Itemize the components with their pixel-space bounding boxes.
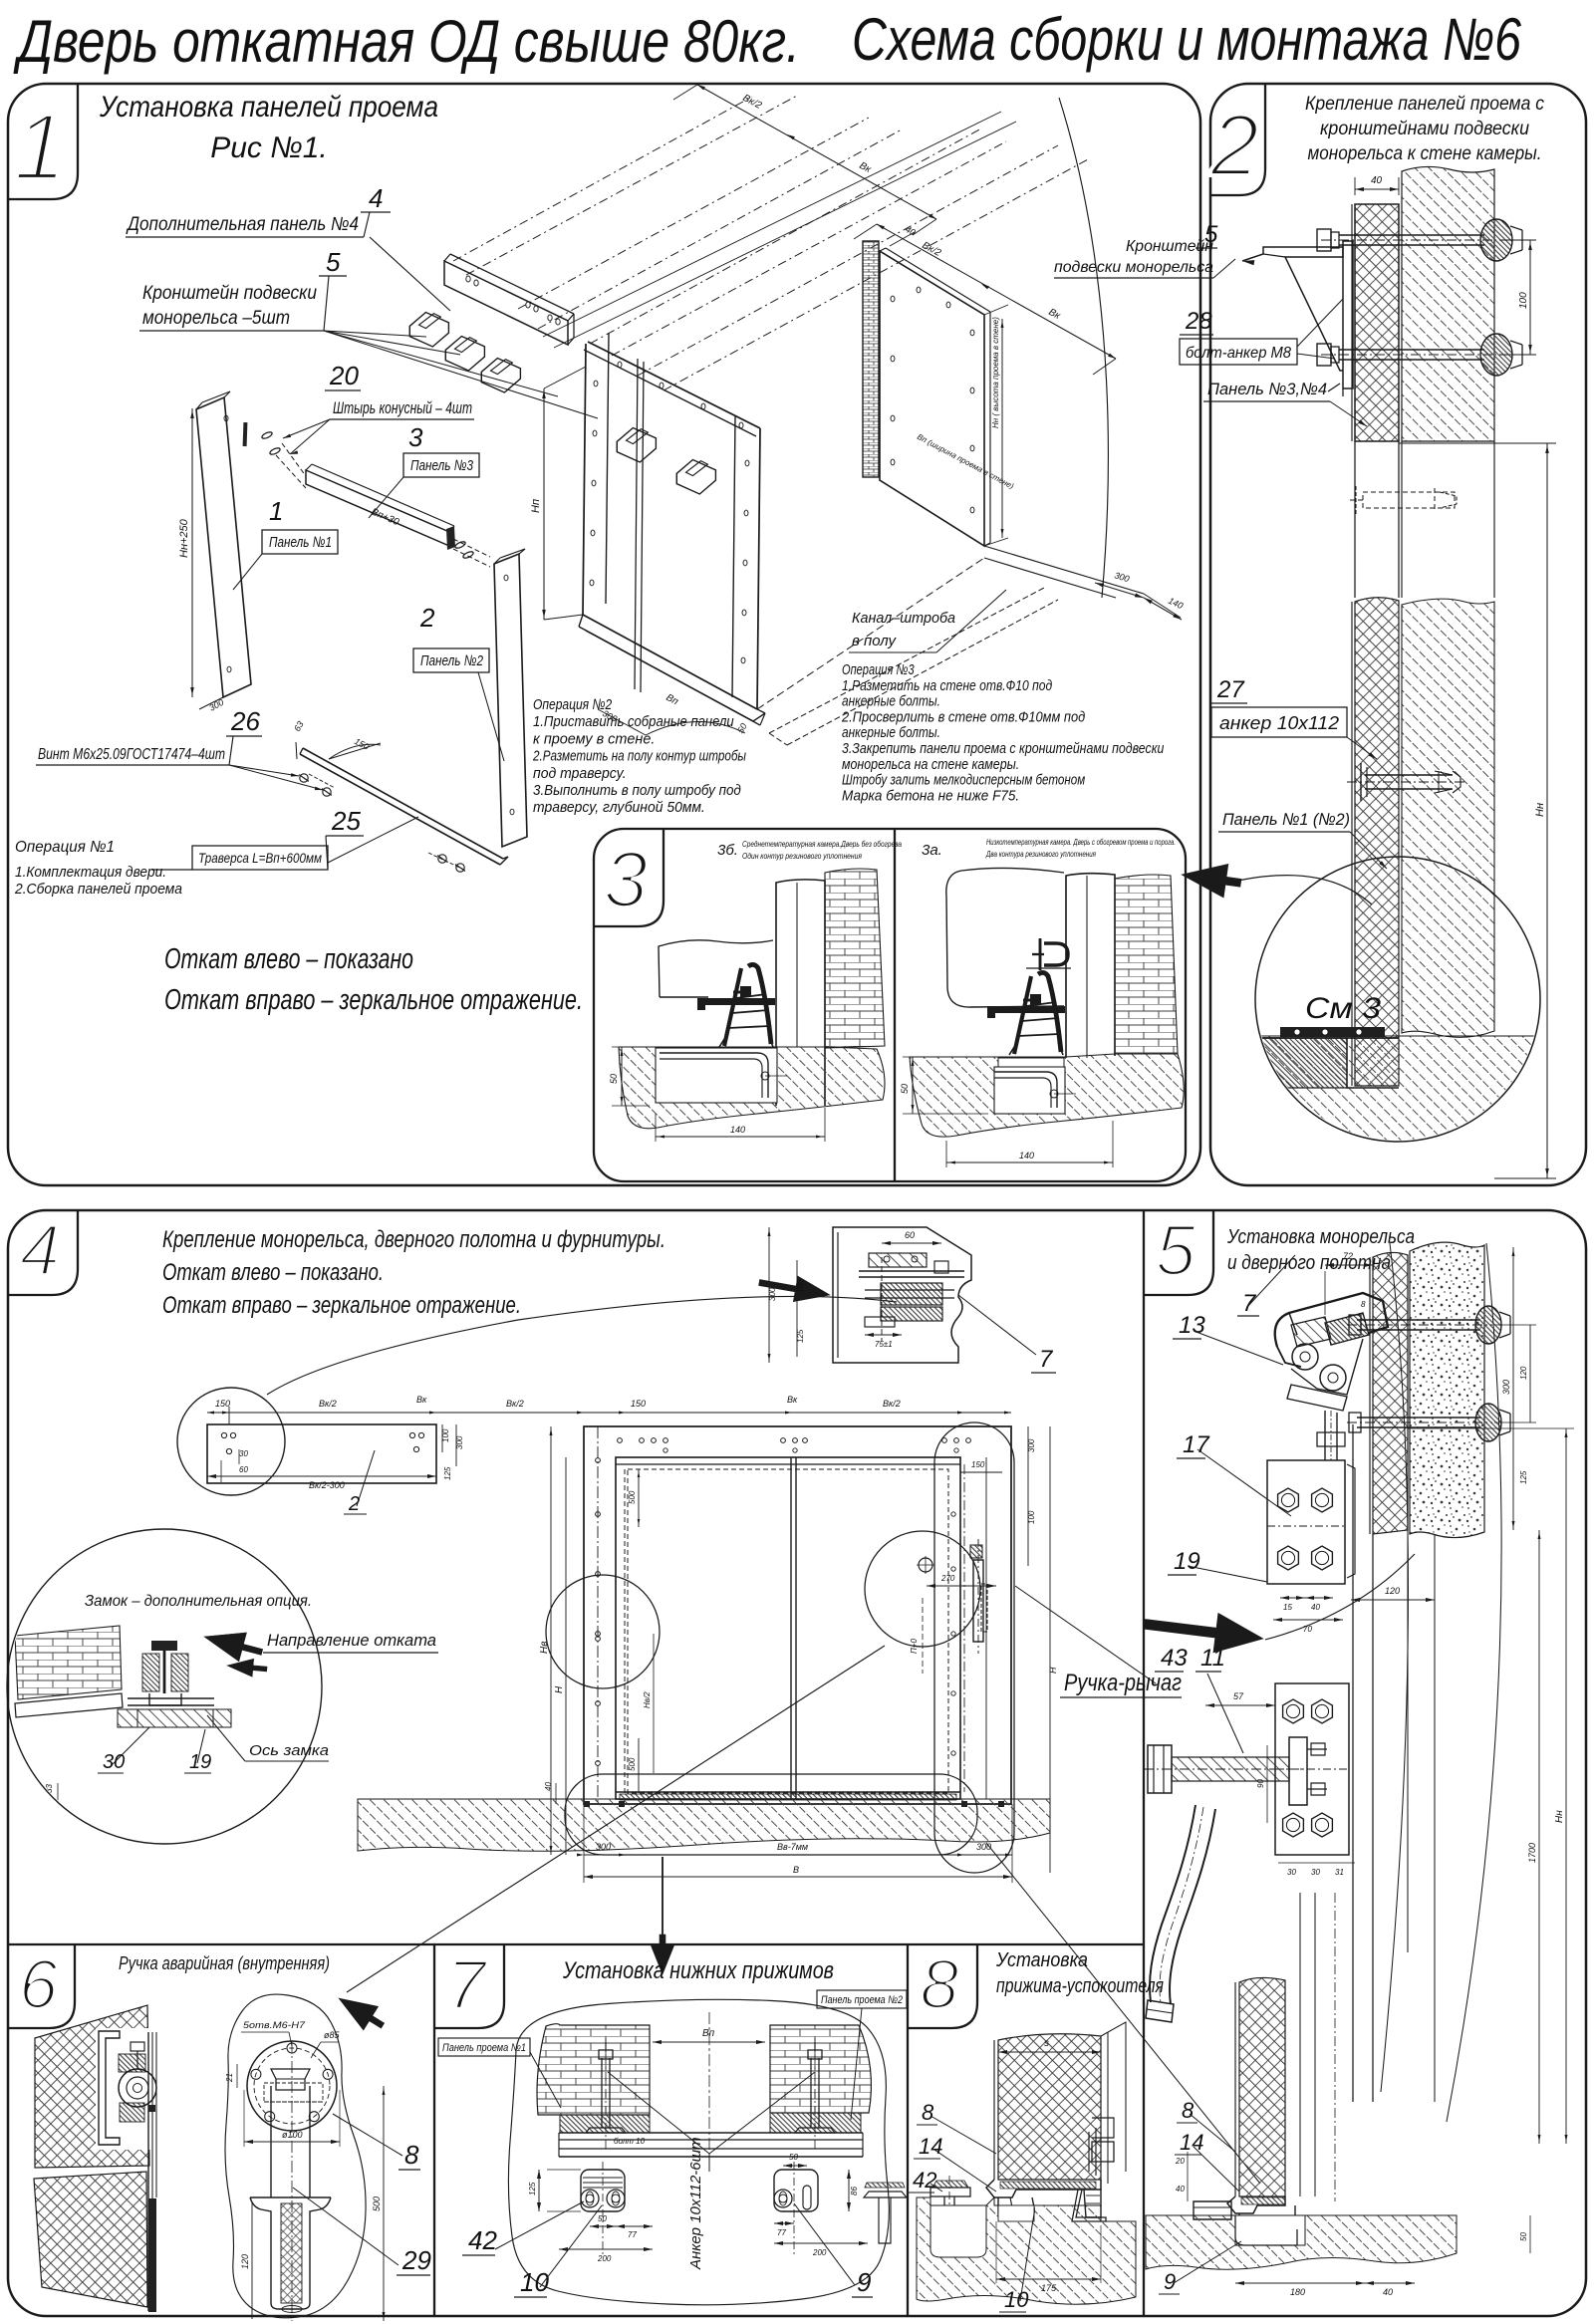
svg-text:2: 2 [1209,96,1259,194]
svg-text:40: 40 [1383,2287,1393,2297]
svg-text:s: s [1044,2038,1049,2049]
svg-text:3.Закрепить панели проема с кр: 3.Закрепить панели проема с кронштейнами… [842,741,1164,757]
svg-text:31: 31 [1335,1868,1344,1877]
svg-text:25: 25 [331,806,361,836]
svg-text:болт-анкер М8: болт-анкер М8 [1186,345,1291,362]
svg-text:50: 50 [609,1074,619,1084]
svg-text:300: 300 [596,1842,611,1852]
svg-text:Установка монорельса: Установка монорельса [1226,1226,1415,1248]
svg-text:Анкер 10х112-6шт: Анкер 10х112-6шт [687,2137,704,2270]
svg-text:Нн: Нн [1534,803,1546,817]
svg-text:4: 4 [369,183,383,213]
svg-text:140: 140 [1019,1151,1034,1161]
svg-text:60: 60 [239,1465,248,1474]
svg-text:20: 20 [1175,2157,1185,2166]
svg-text:Среднетемпературная камера.Две: Среднетемпературная камера.Дверь без обо… [742,839,902,849]
svg-text:1700: 1700 [1527,1843,1537,1863]
svg-text:20: 20 [329,361,359,390]
svg-text:14: 14 [1180,2130,1203,2155]
svg-text:Нв/2: Нв/2 [643,1691,652,1708]
svg-text:72: 72 [1343,1251,1353,1261]
svg-text:Нн+250: Нн+250 [178,518,190,558]
svg-text:500: 500 [628,1490,637,1504]
svg-text:40: 40 [1311,1603,1320,1612]
svg-text:42: 42 [468,2225,497,2255]
svg-text:3.Выполнить в полу штробу под: 3.Выполнить в полу штробу под [533,782,741,799]
svg-text:200: 200 [597,2254,612,2263]
svg-text:125: 125 [528,2182,537,2195]
svg-text:Нв: Нв [539,1642,550,1654]
svg-text:50: 50 [1519,2232,1528,2241]
svg-text:17: 17 [1183,1431,1210,1458]
svg-text:5: 5 [1156,1211,1196,1291]
svg-text:2: 2 [419,603,435,633]
svg-text:Дверь откатная ОД свыше 80кг.: Дверь откатная ОД свыше 80кг. [13,8,800,75]
svg-text:15: 15 [1283,1603,1292,1612]
svg-text:13: 13 [1179,1312,1205,1339]
svg-text:и дверного полотна: и дверного полотна [1227,1252,1391,1274]
svg-text:500: 500 [628,1757,637,1771]
svg-text:1: 1 [14,95,67,200]
svg-text:200: 200 [812,2248,827,2257]
svg-text:75±1: 75±1 [875,1340,893,1349]
svg-text:100: 100 [796,1279,805,1293]
svg-text:3а.: 3а. [922,842,942,859]
svg-text:120: 120 [240,2254,250,2269]
svg-text:траверсу, глубиной 50мм.: траверсу, глубиной 50мм. [533,799,705,816]
svg-text:Канал–штроба: Канал–штроба [852,610,955,627]
svg-text:Кронштейн: Кронштейн [1126,238,1213,255]
svg-text:3: 3 [604,835,649,923]
svg-text:100: 100 [1518,292,1529,309]
svg-text:120: 120 [1519,1366,1528,1380]
svg-text:ø100: ø100 [282,2130,303,2140]
svg-text:Вп: Вп [702,2028,715,2039]
svg-text:1: 1 [269,496,283,526]
svg-text:Вв-7мм: Вв-7мм [777,1842,808,1852]
svg-text:Установка нижних прижимов: Установка нижних прижимов [562,1957,834,1984]
svg-text:в полу: в полу [852,633,898,649]
svg-text:40: 40 [1176,2185,1185,2194]
svg-text:2.Просверлить в стене отв.Ф10м: 2.Просверлить в стене отв.Ф10мм под [841,709,1085,725]
svg-text:ø85: ø85 [324,2030,341,2040]
svg-text:125: 125 [796,1329,805,1343]
svg-text:100: 100 [1027,1510,1036,1524]
svg-text:подвески монорельса: подвески монорельса [1054,259,1213,276]
svg-text:6: 6 [19,1945,58,2023]
svg-text:9: 9 [857,2267,871,2297]
svg-text:42: 42 [913,2168,936,2193]
svg-text:Ручка аварийная (внутренняя): Ручка аварийная (внутренняя) [119,1953,330,1973]
svg-text:Вк: Вк [787,1395,798,1405]
svg-text:30: 30 [103,1751,125,1773]
svg-text:кронштейнами подвески: кронштейнами подвески [1320,119,1529,139]
svg-text:50: 50 [598,2214,607,2223]
svg-text:30: 30 [239,1449,248,1458]
svg-text:Панель №2: Панель №2 [420,652,484,669]
svg-text:77: 77 [777,2228,786,2237]
svg-text:Штробу залить мелкодисперсным: Штробу залить мелкодисперсным бетоном [842,773,1085,789]
svg-text:500: 500 [372,2196,382,2211]
svg-text:Винт М6х25.09ГОСТ17474–4шт: Винт М6х25.09ГОСТ17474–4шт [38,746,225,763]
svg-text:300: 300 [768,1287,777,1301]
svg-text:7: 7 [1039,1346,1054,1373]
svg-text:прижима-успокоителя: прижима-успокоителя [996,1975,1164,1997]
svg-text:под траверсу.: под траверсу. [533,765,627,782]
svg-text:П+0: П+0 [910,1639,919,1654]
svg-text:100: 100 [441,1428,450,1442]
svg-text:анкерные болты.: анкерные болты. [842,694,940,710]
svg-text:Крепление панелей проема с: Крепление панелей проема с [1305,94,1544,115]
svg-text:125: 125 [443,1466,452,1480]
svg-text:30: 30 [1287,1868,1296,1877]
svg-text:2: 2 [348,1493,360,1515]
svg-text:Схема сборки и монтажа №6: Схема сборки и монтажа №6 [852,6,1521,73]
svg-text:Вк/2: Вк/2 [883,1399,901,1409]
svg-text:7: 7 [447,1945,489,2023]
svg-text:Нн ( высота проема в стене): Нн ( высота проема в стене) [991,317,1000,428]
svg-text:30: 30 [1311,1868,1320,1877]
svg-text:Операция №1: Операция №1 [15,839,115,856]
svg-text:Нп: Нп [530,499,542,513]
svg-text:1.Разметить на стене отв.Ф10 п: 1.Разметить на стене отв.Ф10 под [842,678,1052,694]
svg-text:14: 14 [919,2134,942,2159]
svg-text:9: 9 [1164,2269,1176,2294]
svg-text:40: 40 [544,1782,553,1791]
svg-text:2.Разметить на полу контур штр: 2.Разметить на полу контур штробы [532,748,746,765]
svg-text:Откат вправо – зеркальное отра: Откат вправо – зеркальное отражение. [164,984,583,1016]
svg-text:Один контур резинового уплотне: Один контур резинового уплотнения [742,851,862,861]
svg-text:57: 57 [1233,1691,1244,1701]
svg-text:140: 140 [730,1125,745,1135]
svg-text:8: 8 [921,1945,959,2023]
svg-text:Крепление монорельса, дверного: Крепление монорельса, дверного полотна и… [162,1226,665,1253]
svg-text:Н: Н [1048,1667,1058,1674]
svg-text:40: 40 [1371,175,1383,186]
svg-text:Штырь конусный – 4шт: Штырь конусный – 4шт [333,398,472,417]
svg-text:Откат вправо – зеркальное отра: Откат вправо – зеркальное отражение. [162,1292,521,1319]
svg-text:86: 86 [850,2187,859,2195]
svg-text:150: 150 [971,1460,985,1469]
svg-text:90: 90 [1256,1779,1265,1788]
svg-text:анкер 10х112: анкер 10х112 [1219,713,1339,733]
svg-text:Н: Н [554,1685,565,1693]
svg-text:монорельса на стене камеры.: монорельса на стене камеры. [842,757,1019,773]
svg-text:300: 300 [455,1435,464,1449]
svg-text:Ось замка: Ось замка [249,1742,329,1759]
svg-text:Марка бетона не ниже F75.: Марка бетона не ниже F75. [842,788,1019,804]
svg-text:Панель №1 (№2): Панель №1 (№2) [1222,810,1350,829]
svg-text:Вк/2-300: Вк/2-300 [309,1480,345,1490]
svg-text:Кронштейн подвески: Кронштейн подвески [142,283,317,304]
svg-text:монорельса к стене камеры.: монорельса к стене камеры. [1308,143,1542,164]
svg-text:Вк/2: Вк/2 [319,1399,337,1409]
svg-text:3: 3 [408,422,423,452]
svg-text:43: 43 [1161,1645,1188,1672]
svg-text:26: 26 [230,706,260,736]
svg-text:19: 19 [189,1751,211,1773]
svg-text:8: 8 [404,2140,419,2170]
svg-text:1.Комплектация двери.: 1.Комплектация двери. [15,864,166,881]
svg-text:3б.: 3б. [717,842,738,859]
svg-text:Панель проема №1: Панель проема №1 [442,2042,526,2054]
svg-text:8: 8 [922,2100,934,2125]
svg-text:5: 5 [326,247,341,277]
svg-text:Рис №1.: Рис №1. [210,131,328,164]
svg-text:270: 270 [940,1574,955,1583]
svg-text:Операция №3: Операция №3 [842,662,915,678]
svg-text:175: 175 [1041,2283,1057,2293]
svg-text:болт 10: болт 10 [614,2137,646,2146]
svg-text:21: 21 [225,2073,234,2083]
svg-text:Дополнительная панель №4: Дополнительная панель №4 [126,214,359,235]
svg-text:Панель проема №2: Панель проема №2 [821,1994,903,2006]
svg-text:300: 300 [1027,1438,1036,1452]
svg-text:к проему в стене.: к проему в стене. [533,730,655,747]
svg-text:Вк: Вк [416,1395,427,1405]
svg-text:8: 8 [1361,1300,1366,1309]
svg-text:Панель №3: Панель №3 [410,457,474,474]
svg-text:300: 300 [1501,1380,1511,1395]
svg-text:В: В [793,1865,799,1875]
svg-text:29: 29 [401,2245,431,2275]
svg-text:125: 125 [1519,1470,1528,1484]
svg-text:Нн: Нн [1554,1810,1565,1823]
svg-text:180: 180 [1290,2287,1305,2297]
svg-text:Откат влево – показано.: Откат влево – показано. [162,1259,384,1286]
svg-text:19: 19 [1174,1548,1200,1575]
svg-text:Низкотемпературная камера. Две: Низкотемпературная камера. Дверь с обогр… [986,838,1176,847]
svg-text:Откат влево – показано: Откат влево – показано [164,943,413,975]
svg-text:7: 7 [1242,1290,1257,1317]
svg-text:Панель №3,№4: Панель №3,№4 [1207,380,1327,398]
svg-text:8: 8 [1182,2098,1195,2123]
svg-text:Панель №1: Панель №1 [269,534,332,551]
svg-text:10: 10 [1004,2287,1029,2312]
svg-text:77: 77 [628,2230,637,2239]
svg-text:См 3: См 3 [1305,992,1381,1025]
svg-text:120: 120 [1385,1586,1400,1596]
svg-text:4: 4 [20,1211,60,1291]
svg-text:монорельса –5шт: монорельса –5шт [142,308,290,329]
svg-text:анкерные болты.: анкерные болты. [842,725,940,741]
svg-text:50: 50 [789,2153,798,2162]
svg-text:Траверса L=Вп+600мм: Траверса L=Вп+600мм [198,850,322,866]
svg-text:Замок – дополнительная опция.: Замок – дополнительная опция. [85,1593,312,1610]
svg-text:28: 28 [1185,308,1212,335]
svg-text:Установка панелей проема: Установка панелей проема [99,91,438,124]
svg-text:5отв.М6-Н7: 5отв.М6-Н7 [243,2020,306,2030]
svg-text:27: 27 [1216,676,1245,703]
svg-text:Направление отката: Направление отката [267,1631,436,1650]
svg-text:Вк/2: Вк/2 [506,1399,524,1409]
svg-text:2.Сборка панелей проема: 2.Сборка панелей проема [14,881,182,898]
svg-text:60: 60 [905,1230,915,1240]
svg-text:150: 150 [631,1399,646,1409]
svg-text:150: 150 [215,1399,230,1409]
svg-text:Ручка-рычаг: Ручка-рычаг [1064,1670,1182,1696]
svg-text:50: 50 [900,1084,910,1094]
svg-text:Два контура резинового уплотне: Два контура резинового уплотнения [985,850,1096,859]
svg-text:10: 10 [520,2267,549,2297]
svg-text:Установка: Установка [995,1949,1088,1971]
